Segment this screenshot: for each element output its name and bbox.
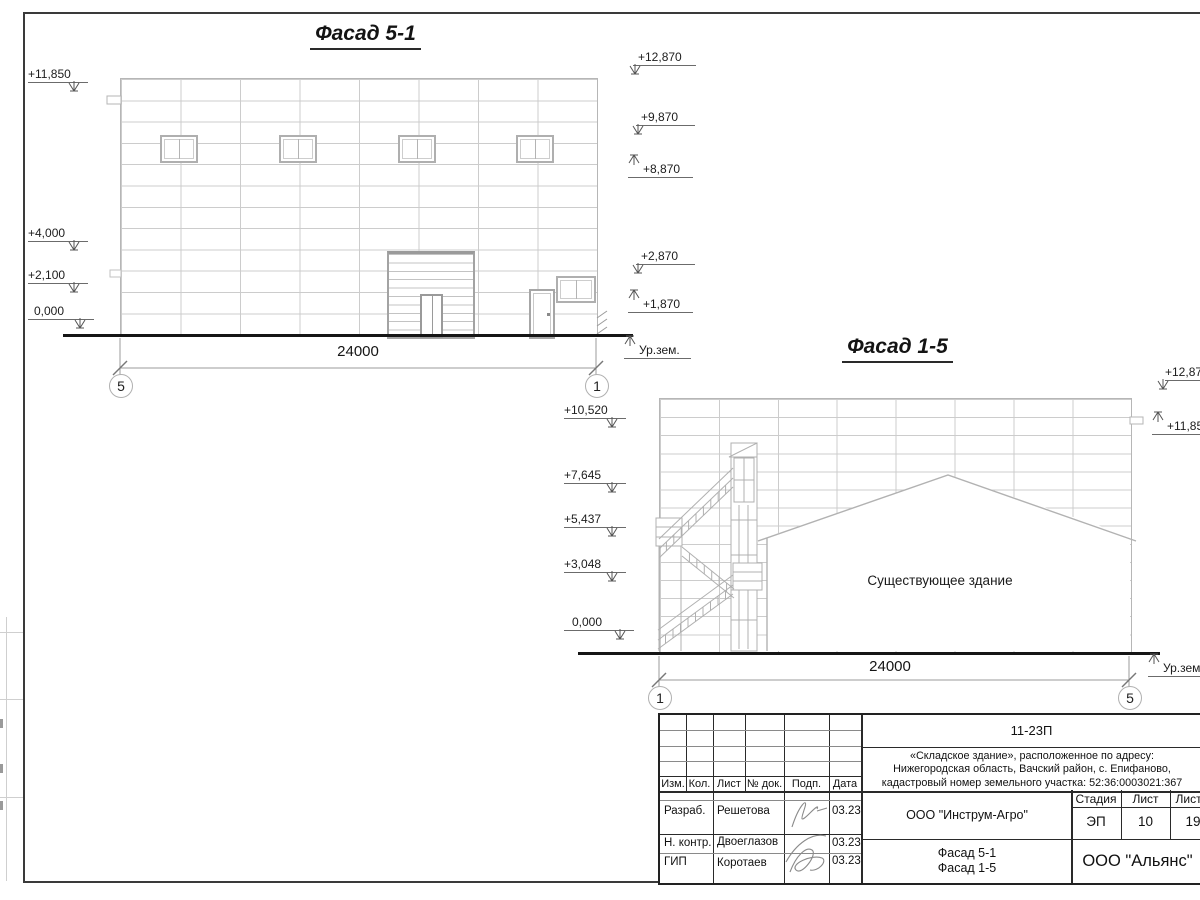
edge-strip-divider	[0, 797, 23, 798]
axis-bubble-1: 1	[585, 374, 609, 398]
client-name: ООО "Инструм-Агро"	[863, 808, 1071, 822]
level-arrow-icon	[626, 151, 642, 165]
stage-header: Стадия	[1071, 792, 1121, 807]
elevation-mark: +12,870	[1165, 365, 1200, 381]
sheets-header: Листов	[1170, 792, 1200, 807]
level-arrow-icon	[604, 482, 620, 496]
window	[516, 135, 554, 163]
level-arrow-icon	[626, 286, 642, 300]
axis-bubble-5: 5	[1118, 686, 1142, 710]
axis-bubble-1: 1	[648, 686, 672, 710]
frame-top	[23, 12, 1200, 14]
staff-name: Двоеглазов	[717, 836, 785, 848]
signature-icon	[782, 828, 834, 880]
stage-value: ЭП	[1071, 814, 1121, 829]
edge-strip-divider	[0, 632, 23, 633]
level-arrow-icon	[604, 571, 620, 585]
sheets-total: 19	[1170, 814, 1200, 829]
level-arrow-icon	[66, 282, 82, 296]
elevation-mark: +1,870	[628, 288, 693, 313]
level-arrow-icon	[630, 124, 646, 138]
elevation-mark: +7,645	[564, 468, 626, 484]
level-arrow-icon	[622, 332, 638, 346]
elevation-mark: +3,048	[564, 557, 626, 573]
ground-line	[63, 334, 633, 337]
level-arrow-icon	[66, 240, 82, 254]
col-header-list: Лист	[713, 777, 745, 792]
dimension-label: 24000	[316, 343, 400, 360]
elevation-mark: 0,000	[564, 615, 634, 631]
staff-role: Разраб.	[664, 805, 713, 817]
elevation-mark: +2,870	[636, 249, 695, 265]
window	[279, 135, 317, 163]
col-header-data: Дата	[829, 777, 861, 792]
sheet-number: 10	[1121, 814, 1170, 829]
title-block: Изм. Кол. Лист № док. Подп. Дата Разраб.…	[658, 713, 1200, 885]
level-arrow-icon	[612, 629, 628, 643]
staff-role: Н. контр.	[664, 837, 713, 849]
staff-date: 03.23	[832, 837, 861, 849]
facade-5-1-wall	[120, 78, 598, 336]
project-description: «Складское здание», расположенное по адр…	[864, 750, 1200, 790]
level-arrow-icon	[1155, 379, 1171, 393]
level-arrow-icon	[604, 417, 620, 431]
elevation-mark: +12,870	[633, 50, 696, 66]
window	[556, 276, 596, 303]
organization-name: ООО "Альянс"	[1073, 852, 1200, 871]
elevation-mark: +8,870	[628, 153, 693, 178]
level-arrow-icon	[630, 263, 646, 277]
axis-bubble-5: 5	[109, 374, 133, 398]
existing-building-label: Существующее здание	[840, 573, 1040, 588]
elevation-mark: +11,850	[28, 67, 88, 83]
document-number: 11-23П	[861, 723, 1200, 738]
elevation-mark: +11,850	[1152, 410, 1200, 435]
col-header-podp: Подп.	[784, 777, 829, 792]
frame-left	[23, 12, 25, 883]
entrance-door	[529, 289, 555, 339]
staff-role: ГИП	[664, 856, 713, 868]
elevation-mark: +9,870	[636, 110, 695, 126]
level-arrow-icon	[66, 81, 82, 95]
elevation-mark: 0,000	[28, 304, 94, 320]
grade-hatch	[597, 311, 607, 334]
facade-5-1-title: Фасад 5-1	[268, 22, 463, 50]
staff-date: 03.23	[832, 805, 861, 817]
level-arrow-icon	[72, 318, 88, 332]
level-arrow-icon	[627, 64, 643, 78]
ground-level-label: Ур.зем.	[624, 334, 691, 359]
elevation-mark: +5,437	[564, 512, 626, 528]
wall-bracket	[107, 96, 121, 104]
level-arrow-icon	[1146, 650, 1162, 664]
edge-strip-divider	[0, 699, 23, 700]
edge-strip-text-fragment	[0, 719, 3, 728]
sheet-content: Фасад 5-1 Фасад 1-5	[863, 846, 1071, 876]
staff-name: Решетова	[717, 805, 783, 817]
sheet-header: Лист	[1121, 792, 1170, 807]
elevation-mark: +10,520	[564, 403, 626, 419]
col-header-izm: Изм.	[660, 777, 686, 792]
window	[398, 135, 436, 163]
facade-1-5-wall	[659, 398, 1132, 653]
ground-level-label: Ур.зем.	[1148, 652, 1200, 677]
facade-1-5-title: Фасад 1-5	[800, 335, 995, 363]
edge-strip-text-fragment	[0, 764, 3, 773]
sectional-gate	[387, 251, 475, 339]
elevation-mark: +4,000	[28, 226, 88, 242]
level-arrow-icon	[604, 526, 620, 540]
col-header-doc: № док.	[745, 777, 784, 792]
col-header-kol: Кол.	[686, 777, 713, 792]
edge-strip-text-fragment	[0, 801, 3, 810]
wicket-door	[420, 294, 443, 338]
staff-name: Коротаев	[717, 857, 783, 869]
dimension-label: 24000	[848, 658, 932, 675]
drawing-sheet: Фасад 5-1 Фасад 1-5 24000 5 1 24000 1 5 …	[0, 0, 1200, 900]
window	[160, 135, 198, 163]
staff-date: 03.23	[832, 855, 861, 867]
elevation-mark: +2,100	[28, 268, 88, 284]
level-arrow-icon	[1150, 408, 1166, 422]
edge-strip-line	[6, 617, 7, 881]
ground-line	[578, 652, 1160, 655]
